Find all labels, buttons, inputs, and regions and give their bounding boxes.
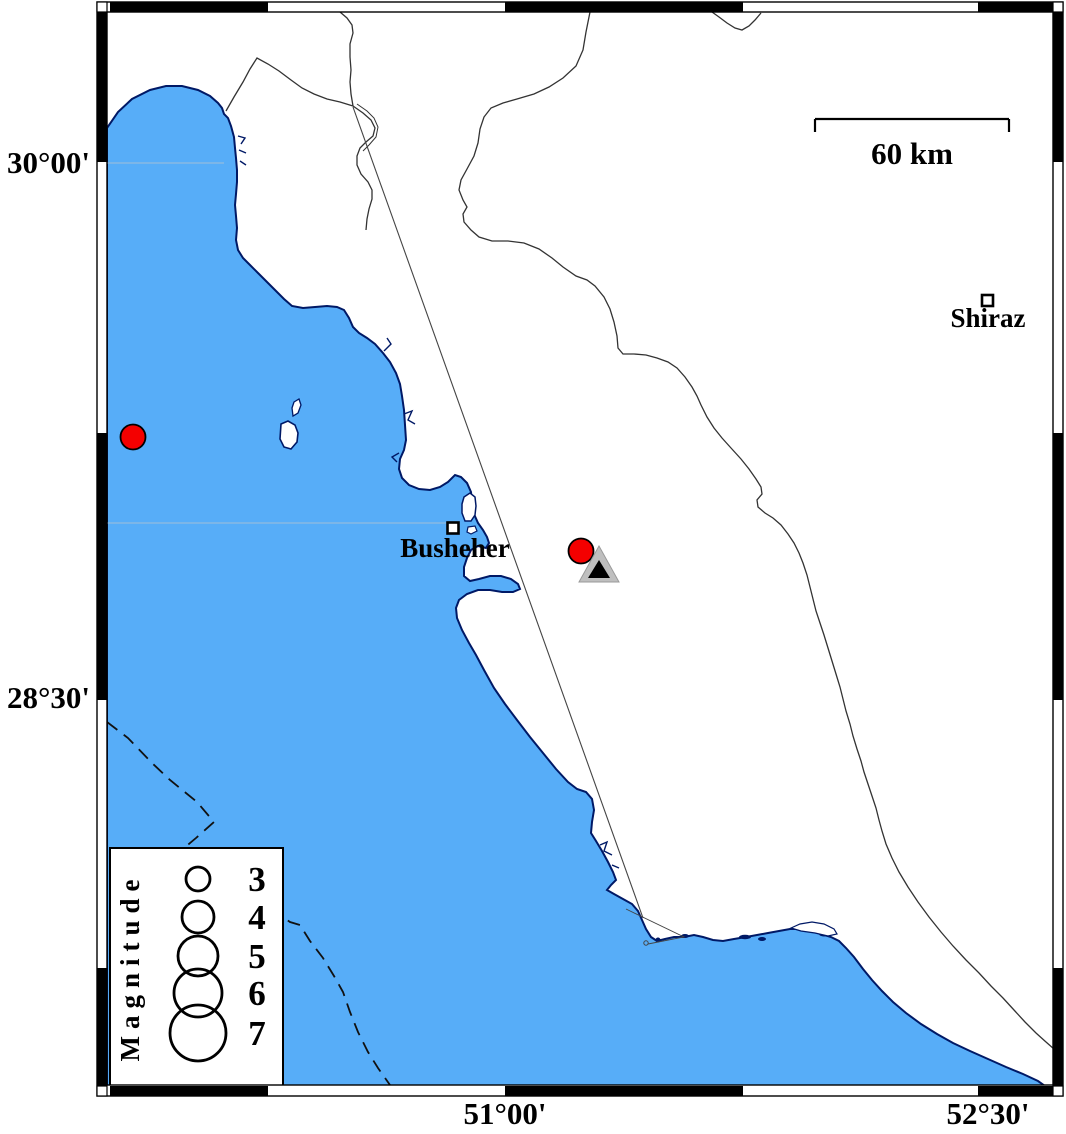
frame-segment xyxy=(978,2,1053,12)
earthquake-marker xyxy=(121,425,146,450)
scale-bar-label: 60 km xyxy=(871,136,953,171)
frame-segment xyxy=(978,1086,1053,1096)
frame-segment xyxy=(97,12,107,162)
legend-value-mag3: 3 xyxy=(248,860,266,899)
border-northwest xyxy=(226,58,353,111)
frame-corner xyxy=(97,1086,107,1096)
city-marker-busheher xyxy=(448,523,459,534)
frame-segment xyxy=(110,1086,268,1096)
map-page: Busheher Shiraz 60 km Magnitude 3 4 5 6 … xyxy=(0,0,1066,1134)
border-north-vertical xyxy=(340,12,353,106)
legend-value-mag5: 5 xyxy=(248,937,266,976)
legend-title: Magnitude xyxy=(115,872,145,1061)
lon-label-51: 51°00' xyxy=(463,1096,546,1131)
frame-segment xyxy=(505,2,743,12)
coastal-islet xyxy=(739,935,751,939)
legend-value-mag4: 4 xyxy=(248,898,266,937)
city-label-busheher: Busheher xyxy=(400,533,510,563)
lon-label-52-30: 52°30' xyxy=(946,1096,1029,1131)
frame-segment xyxy=(97,968,107,1086)
seismicity-map: Busheher Shiraz 60 km Magnitude 3 4 5 6 … xyxy=(0,0,1066,1134)
coastal-islet xyxy=(758,937,766,941)
frame-corner xyxy=(97,2,107,12)
border-top-loop xyxy=(712,12,761,30)
lat-label-30: 30°00' xyxy=(7,145,90,180)
frame-segment xyxy=(110,2,268,12)
lat-label-28-30: 28°30' xyxy=(7,680,90,715)
frame-segment xyxy=(1053,12,1063,162)
city-label-shiraz: Shiraz xyxy=(950,303,1025,333)
island xyxy=(280,421,298,449)
legend-value-mag6: 6 xyxy=(248,974,266,1013)
border-hairpin xyxy=(353,106,375,230)
earthquake-marker xyxy=(569,539,594,564)
frame-corner xyxy=(1053,1086,1063,1096)
bay-island xyxy=(462,493,476,521)
frame-segment xyxy=(1053,433,1063,700)
frame-corner xyxy=(1053,2,1063,12)
frame-segment xyxy=(97,433,107,700)
frame-segment xyxy=(1053,968,1063,1086)
frame-segment xyxy=(505,1086,743,1096)
magnitude-legend: Magnitude 3 4 5 6 7 xyxy=(110,848,283,1086)
legend-value-mag7: 7 xyxy=(248,1014,266,1053)
scale-bar xyxy=(815,119,1009,132)
